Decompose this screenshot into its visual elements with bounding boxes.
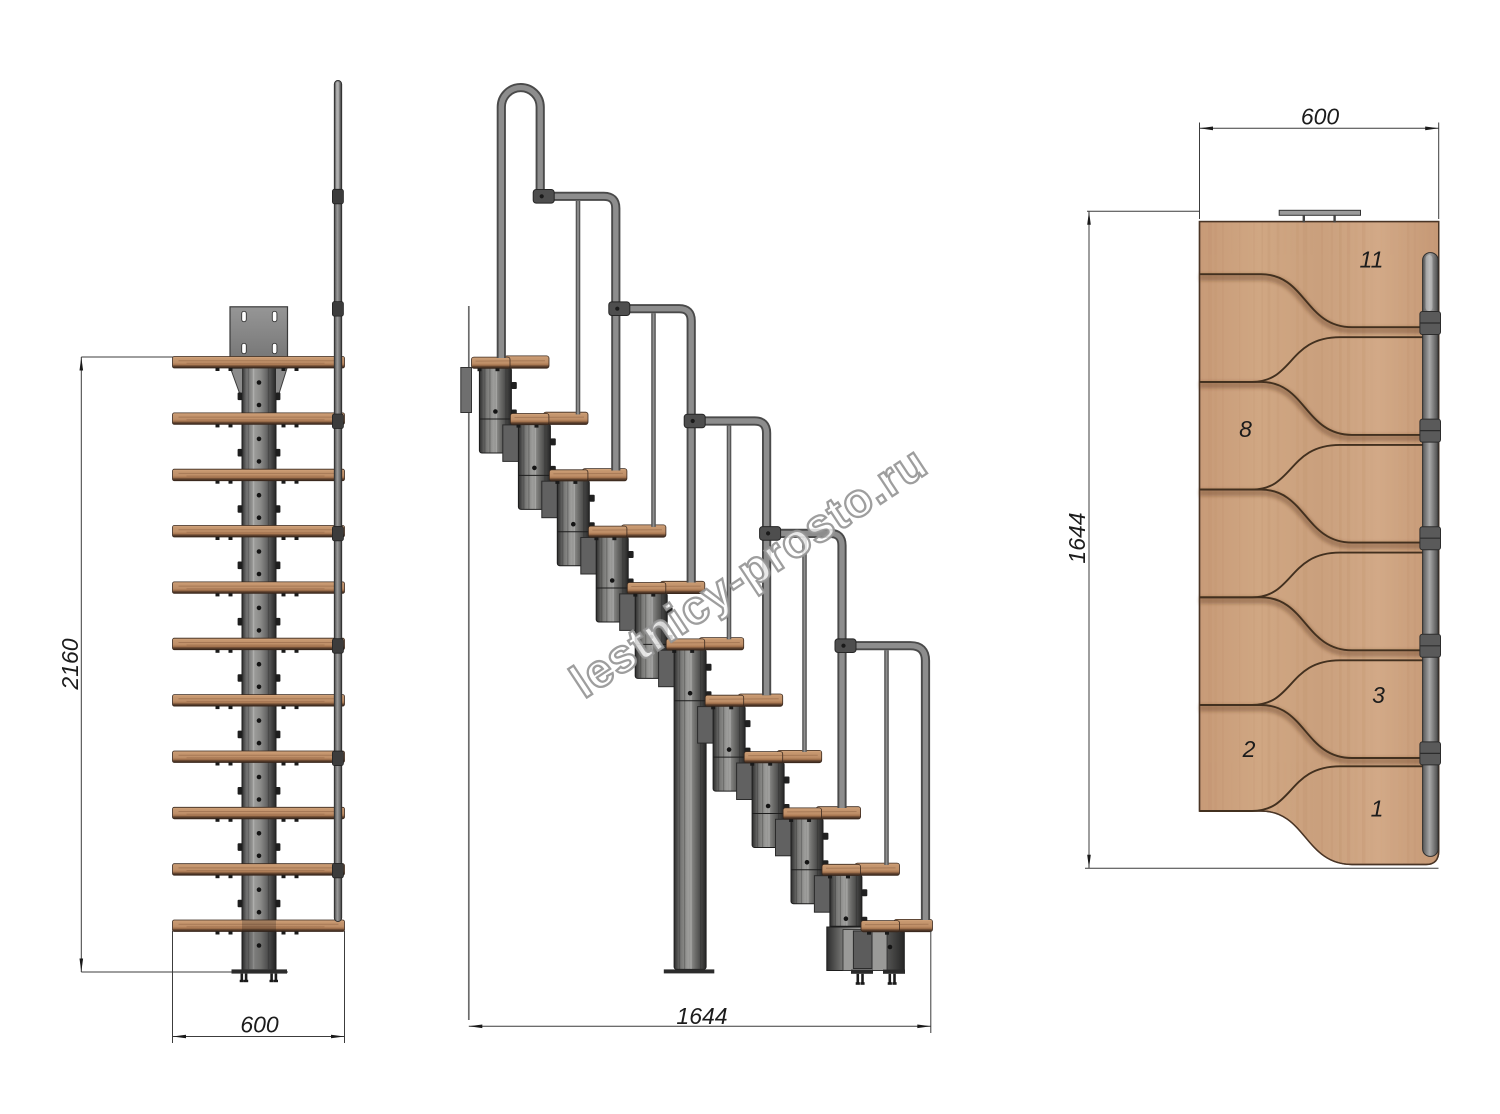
svg-text:3: 3 — [1372, 682, 1385, 708]
svg-text:1: 1 — [1371, 796, 1384, 822]
svg-text:1644: 1644 — [1064, 512, 1090, 563]
svg-text:2: 2 — [1242, 736, 1256, 762]
svg-text:600: 600 — [1301, 104, 1340, 130]
svg-text:11: 11 — [1360, 247, 1384, 273]
svg-text:8: 8 — [1239, 416, 1252, 442]
svg-text:1644: 1644 — [676, 1003, 727, 1029]
svg-text:2160: 2160 — [57, 638, 83, 690]
svg-text:600: 600 — [240, 1012, 279, 1038]
